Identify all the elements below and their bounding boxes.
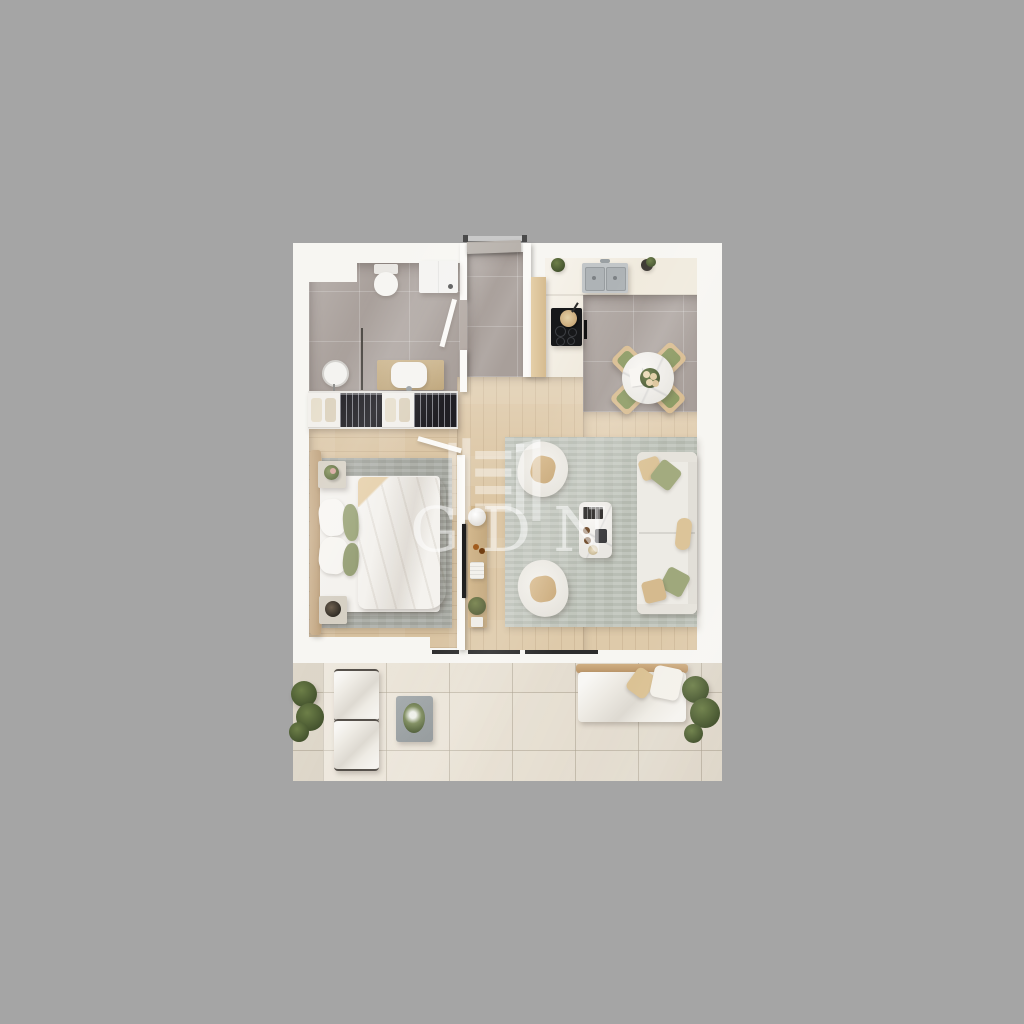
bathroom-wall-notch <box>309 263 357 282</box>
entrance-door-leaf <box>467 240 521 254</box>
washer-knob <box>448 284 453 289</box>
console-box <box>471 617 483 627</box>
living-window-left <box>468 650 520 654</box>
floor-plan-render: GDN <box>0 0 1024 1024</box>
kitchen-tall-cabinet <box>531 277 546 377</box>
sofa-armrest-bottom <box>637 604 697 614</box>
kitchen-counter-edge <box>545 294 697 296</box>
entrance-door-hinge-right <box>522 235 527 242</box>
floor-lamp <box>468 508 486 526</box>
vanity-basin <box>391 362 427 388</box>
entry-hall-floor <box>467 252 523 377</box>
balcony-chair-2 <box>334 719 379 771</box>
console-book-stack <box>470 562 484 579</box>
balcony-table-plant <box>403 703 425 733</box>
nightstand-bottom-tray <box>325 601 341 617</box>
console-plant <box>468 597 486 615</box>
bedroom-corner-wall <box>309 637 430 663</box>
oven-handle <box>584 320 587 339</box>
tv-screen <box>462 524 466 598</box>
dining-centerpiece-leaves <box>640 368 660 388</box>
wardrobe-shelf-section-2 <box>382 393 414 428</box>
wardrobe-hanging-section-1 <box>340 393 382 427</box>
sink-faucet <box>600 259 610 263</box>
coffee-table-cups <box>583 527 590 534</box>
wardrobe-shelf-section-1 <box>308 393 340 428</box>
console-decor-amber <box>473 544 479 550</box>
coffee-table-flower <box>588 545 598 555</box>
dining-centerpiece-roses <box>643 371 650 378</box>
wardrobe-hanging-section-2 <box>414 393 457 427</box>
balcony-chair-1 <box>334 669 379 722</box>
kitchen-plant-right <box>646 257 656 267</box>
bathroom-door-threshold <box>460 300 467 350</box>
balcony-plant-left-c <box>289 722 309 742</box>
blanket-fold <box>358 477 392 507</box>
living-window-right <box>525 650 598 654</box>
bedroom-window <box>432 650 459 654</box>
shower-glass-screen <box>361 328 363 390</box>
pan-on-cooktop <box>560 310 577 327</box>
toilet-bowl <box>374 272 398 296</box>
coffee-table-box <box>595 529 607 543</box>
bathroom-hall-wall-lower <box>460 350 467 392</box>
hall-kitchen-wall <box>523 243 531 377</box>
kitchen-plant-left <box>551 258 565 272</box>
kitchen-sink <box>582 263 628 293</box>
balcony-plant-right-c <box>684 724 703 743</box>
nightstand-top-bloom <box>330 468 336 474</box>
round-mirror <box>322 360 349 387</box>
wardrobe <box>308 391 458 429</box>
coffee-table-books <box>583 507 603 519</box>
bathroom-hall-wall-upper <box>460 243 467 300</box>
